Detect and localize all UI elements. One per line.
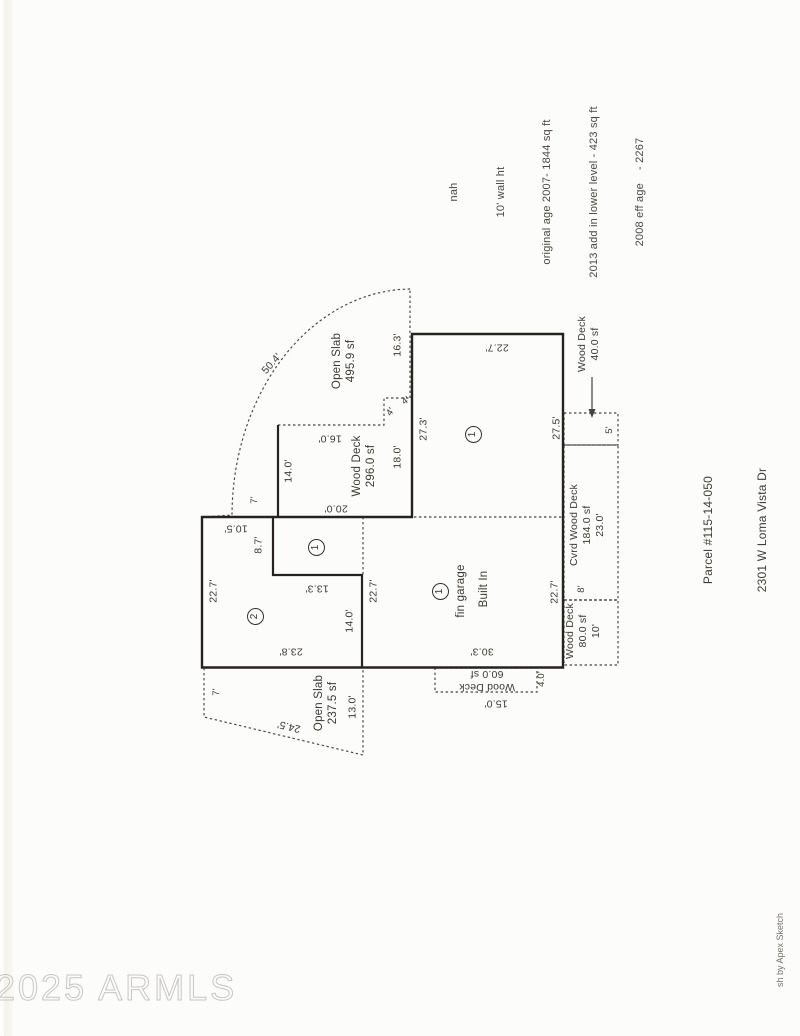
open-slab-upper-label: Open Slab 495.9 sf: [330, 333, 358, 389]
note-line: original age 2007- 1844 sq ft: [540, 87, 556, 297]
garage-label: fin garage: [454, 564, 468, 617]
note-line: nah: [447, 87, 463, 297]
note-line: 2008 eff age - 2267: [633, 87, 649, 297]
property-info-block: Parcel #115-14-050 2301 W Loma Vista Dr …: [663, 420, 717, 640]
wood-deck-60-label: Wood Deck 60.0 sf: [459, 667, 515, 693]
wood-deck-80-label: Wood Deck 80.0 sf 10': [564, 603, 602, 659]
dim-wood-deck-60-right: 4.0': [536, 671, 548, 687]
open-slab-lower-label: Open Slab 237.5 sf: [312, 675, 340, 731]
cvrd-wood-deck-label: Cvrd Wood Deck 184.0 sf 23.0': [568, 484, 606, 566]
dim-area2-top: 10.5': [224, 522, 247, 535]
dim-area2-bottom: 23.8': [279, 645, 302, 658]
note-line: 2013 add in lower level - 423 sq ft: [587, 87, 603, 297]
dim-garage-right: 22.7': [549, 580, 562, 603]
dim-wood-deck-right: 18.0': [392, 445, 405, 468]
property-address: 2301 W Loma Vista Dr: [753, 420, 771, 640]
dim-area2-left: 22.7': [208, 579, 221, 602]
dim-open-slab-right: 16.3': [392, 333, 405, 356]
dim-wood-deck-40: 5': [604, 426, 616, 434]
wood-deck-296-label: Wood Deck 296.0 sf: [350, 435, 378, 496]
dim-cvrd-deck-width: 8': [576, 585, 588, 593]
area-marker-2: 2: [247, 608, 264, 625]
open-slab-arc: [204, 289, 410, 517]
dim-wood-deck-left: 14.0': [283, 459, 296, 482]
dim-wood-deck-60-bottom: 15.0': [484, 697, 507, 710]
garage-builtin-label: Built In: [477, 571, 491, 608]
dim-open-slab-lower-left: 7': [211, 688, 223, 696]
dim-arc-connector: 7': [249, 496, 261, 504]
dim-area2-right: 14.0': [344, 609, 357, 632]
area-marker-1-garage: 1: [432, 583, 449, 600]
dim-wood-deck-bottom: 20.0': [324, 502, 347, 515]
appraisal-notes: nah 10' wall ht original age 2007- 1844 …: [416, 87, 496, 297]
dim-garage-bottom: 30.3': [470, 645, 493, 658]
note-line: 10' wall ht: [494, 87, 510, 297]
dim-garage-left: 22.7': [368, 579, 381, 602]
parcel-number: Parcel #115-14-050: [699, 420, 717, 640]
dim-area2-notch-h: 13.3': [305, 582, 328, 595]
wood-deck-40-label: Wood Deck 40.0 sf: [576, 316, 602, 372]
dim-area1-right: 27.5': [551, 416, 564, 439]
sketch-credit: sh by Apex Sketch: [775, 895, 787, 1005]
scanned-page: 50.4'Open Slab 495.9 sf16.3'22.7'27.3'27…: [0, 0, 800, 1036]
area-marker-1-main: 1: [465, 426, 482, 443]
dim-wood-deck-top: 16.0': [318, 432, 341, 445]
dim-area1-left: 27.3': [418, 417, 431, 440]
dim-area2-notch-v: 8.7': [253, 536, 266, 553]
dim-area1-top: 22.7': [485, 341, 508, 354]
dim-open-slab-lower-right: 13.0': [347, 695, 360, 718]
area-marker-1-small: 1: [308, 539, 325, 556]
armls-watermark: 2025 ARMLS: [0, 967, 237, 1009]
